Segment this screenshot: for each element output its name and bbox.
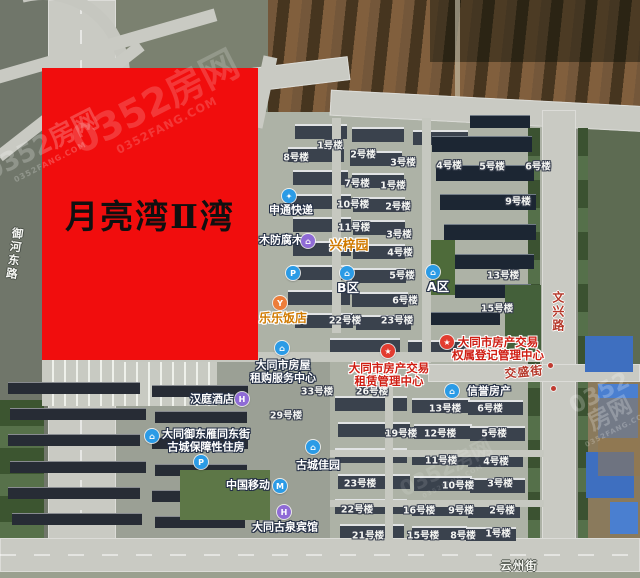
poi-label-lele-restaurant: 乐乐饭店 bbox=[259, 312, 307, 326]
building-label: 29号楼 bbox=[270, 412, 302, 423]
restaurant-icon[interactable]: Y bbox=[273, 296, 287, 310]
building-label: 11号楼 bbox=[338, 224, 370, 235]
building-label: 5号楼 bbox=[481, 430, 507, 441]
building-label: 7号楼 bbox=[344, 180, 370, 191]
building-label: 4号楼 bbox=[483, 458, 509, 469]
poi-label-anticorrosive-wood: 木防腐木 bbox=[259, 235, 303, 248]
yunzhou-lane-line bbox=[0, 554, 640, 556]
building-label: 2号楼 bbox=[489, 507, 515, 518]
building-label: 10号楼 bbox=[337, 201, 369, 212]
building-label: 33号楼 bbox=[301, 388, 333, 399]
building-label: 6号楼 bbox=[525, 163, 551, 174]
building-roof bbox=[8, 487, 140, 499]
building-label: 16号楼 bbox=[403, 507, 435, 518]
parking-icon[interactable]: P bbox=[194, 455, 208, 469]
building-label: 6号楼 bbox=[477, 405, 503, 416]
building-label: 9号楼 bbox=[448, 507, 474, 518]
building-roof bbox=[8, 434, 140, 446]
estate-icon[interactable]: ⌂ bbox=[306, 440, 320, 454]
zone-icon[interactable]: ⌂ bbox=[426, 265, 440, 279]
building-roof bbox=[444, 224, 536, 240]
building-label: 1号楼 bbox=[485, 530, 511, 541]
road-label-wenxing-road: 文兴路 bbox=[550, 291, 564, 333]
building-label: 13号楼 bbox=[487, 272, 519, 283]
terrain-patch bbox=[610, 502, 638, 534]
terrain-patch bbox=[180, 470, 270, 520]
hotel-icon[interactable]: H bbox=[235, 392, 249, 406]
building-label: 1号楼 bbox=[317, 142, 343, 153]
poi-label-zone-a: A区 bbox=[427, 280, 449, 294]
poi-label-realty-trade-leasing-center: 大同市房产交易租赁管理中心 bbox=[349, 362, 430, 388]
agency-icon[interactable]: ⌂ bbox=[445, 384, 459, 398]
office-icon[interactable]: ⌂ bbox=[275, 341, 289, 355]
poi-label-china-mobile: 中国移动 bbox=[226, 480, 270, 493]
terrain-patch bbox=[422, 118, 431, 363]
building-roof bbox=[432, 136, 532, 152]
farmland-dark-patch bbox=[430, 0, 640, 62]
building-label: 1号楼 bbox=[380, 182, 406, 193]
poi-label-zone-b: B区 bbox=[337, 281, 359, 295]
project-area-overlay: 月亮湾Ⅱ湾 bbox=[42, 68, 258, 360]
poi-label-xingziyuan: 兴梓园 bbox=[329, 240, 368, 255]
building-label: 13号楼 bbox=[429, 405, 461, 416]
building-roof bbox=[450, 254, 534, 269]
building-label: 2号楼 bbox=[350, 151, 376, 162]
building-label: 23号楼 bbox=[344, 480, 376, 491]
building-roof bbox=[470, 115, 530, 128]
building-label: 12号楼 bbox=[424, 430, 456, 441]
building-label: 4号楼 bbox=[387, 249, 413, 260]
poi-label-xinyu-realty: 信誉房产 bbox=[467, 386, 511, 399]
building-label: 19号楼 bbox=[385, 430, 417, 441]
bus-stop-dot bbox=[551, 386, 556, 391]
building-label: 3号楼 bbox=[487, 480, 513, 491]
poi-label-realty-trade-registration-center: 大同市房产交易权属登记管理中心 bbox=[452, 336, 544, 362]
building-label: 22号楼 bbox=[341, 506, 373, 517]
building-label: 2号楼 bbox=[385, 203, 411, 214]
building-label: 15号楼 bbox=[481, 305, 513, 316]
hotel-icon[interactable]: H bbox=[277, 505, 291, 519]
poi-label-guquan-hotel: 大同古泉宾馆 bbox=[252, 522, 318, 535]
building-label: 8号楼 bbox=[450, 532, 476, 543]
mobile-icon[interactable]: M bbox=[273, 479, 287, 493]
bottom-strip bbox=[0, 572, 640, 578]
wenxing-road-surface bbox=[542, 110, 576, 578]
terrain-patch bbox=[385, 385, 393, 540]
building-label: 3号楼 bbox=[386, 231, 412, 242]
building-label: 6号楼 bbox=[392, 297, 418, 308]
poi-label-hanting-hotel: 汉庭酒店 bbox=[190, 394, 234, 407]
building-label: 26号楼 bbox=[356, 388, 388, 399]
bus-stop-dot bbox=[548, 363, 553, 368]
building-label: 11号楼 bbox=[425, 457, 457, 468]
terrain-patch bbox=[598, 398, 640, 476]
parking-icon[interactable]: P bbox=[286, 266, 300, 280]
poi-label-gucheng-subsidized-housing: 大同御东雁同东街古城保障性住房 bbox=[162, 428, 250, 453]
road-label-yunzhou-street: 云州街 bbox=[500, 559, 538, 572]
building-label: 5号楼 bbox=[479, 163, 505, 174]
poi-label-housing-rental-service-center: 大同市房屋租购服务中心 bbox=[250, 359, 316, 384]
satellite-map[interactable]: 御河东路文兴路交盛街云州街1号楼2号楼8号楼3号楼4号楼5号楼6号楼7号楼1号楼… bbox=[0, 0, 640, 578]
zone-icon[interactable]: ⌂ bbox=[340, 266, 354, 280]
estate-icon[interactable]: ⌂ bbox=[301, 234, 315, 248]
building-roof bbox=[155, 411, 247, 423]
building-label: 22号楼 bbox=[329, 317, 361, 328]
building-label: 4号楼 bbox=[436, 162, 462, 173]
building-roof bbox=[10, 461, 146, 473]
building-label: 5号楼 bbox=[389, 272, 415, 283]
building-label: 15号楼 bbox=[407, 532, 439, 543]
express-icon[interactable]: ✦ bbox=[282, 189, 296, 203]
project-title: 月亮湾Ⅱ湾 bbox=[65, 190, 235, 238]
building-roof bbox=[352, 127, 404, 142]
terrain-patch bbox=[585, 336, 633, 372]
building-roof bbox=[10, 408, 146, 420]
building-roof bbox=[12, 513, 142, 525]
building-label: 21号楼 bbox=[352, 532, 384, 543]
building-label: 3号楼 bbox=[390, 159, 416, 170]
poi-label-gucheng-jiayuan: 古城佳园 bbox=[296, 460, 340, 473]
building-label: 9号楼 bbox=[505, 198, 531, 209]
building-label: 8号楼 bbox=[283, 154, 309, 165]
building-label: 23号楼 bbox=[381, 317, 413, 328]
building-roof bbox=[8, 382, 140, 394]
building-label: 10号楼 bbox=[442, 482, 474, 493]
housing-icon[interactable]: ⌂ bbox=[145, 429, 159, 443]
star-icon[interactable]: ★ bbox=[381, 344, 395, 358]
poi-label-shentong-express: 申通快递 bbox=[269, 205, 313, 218]
